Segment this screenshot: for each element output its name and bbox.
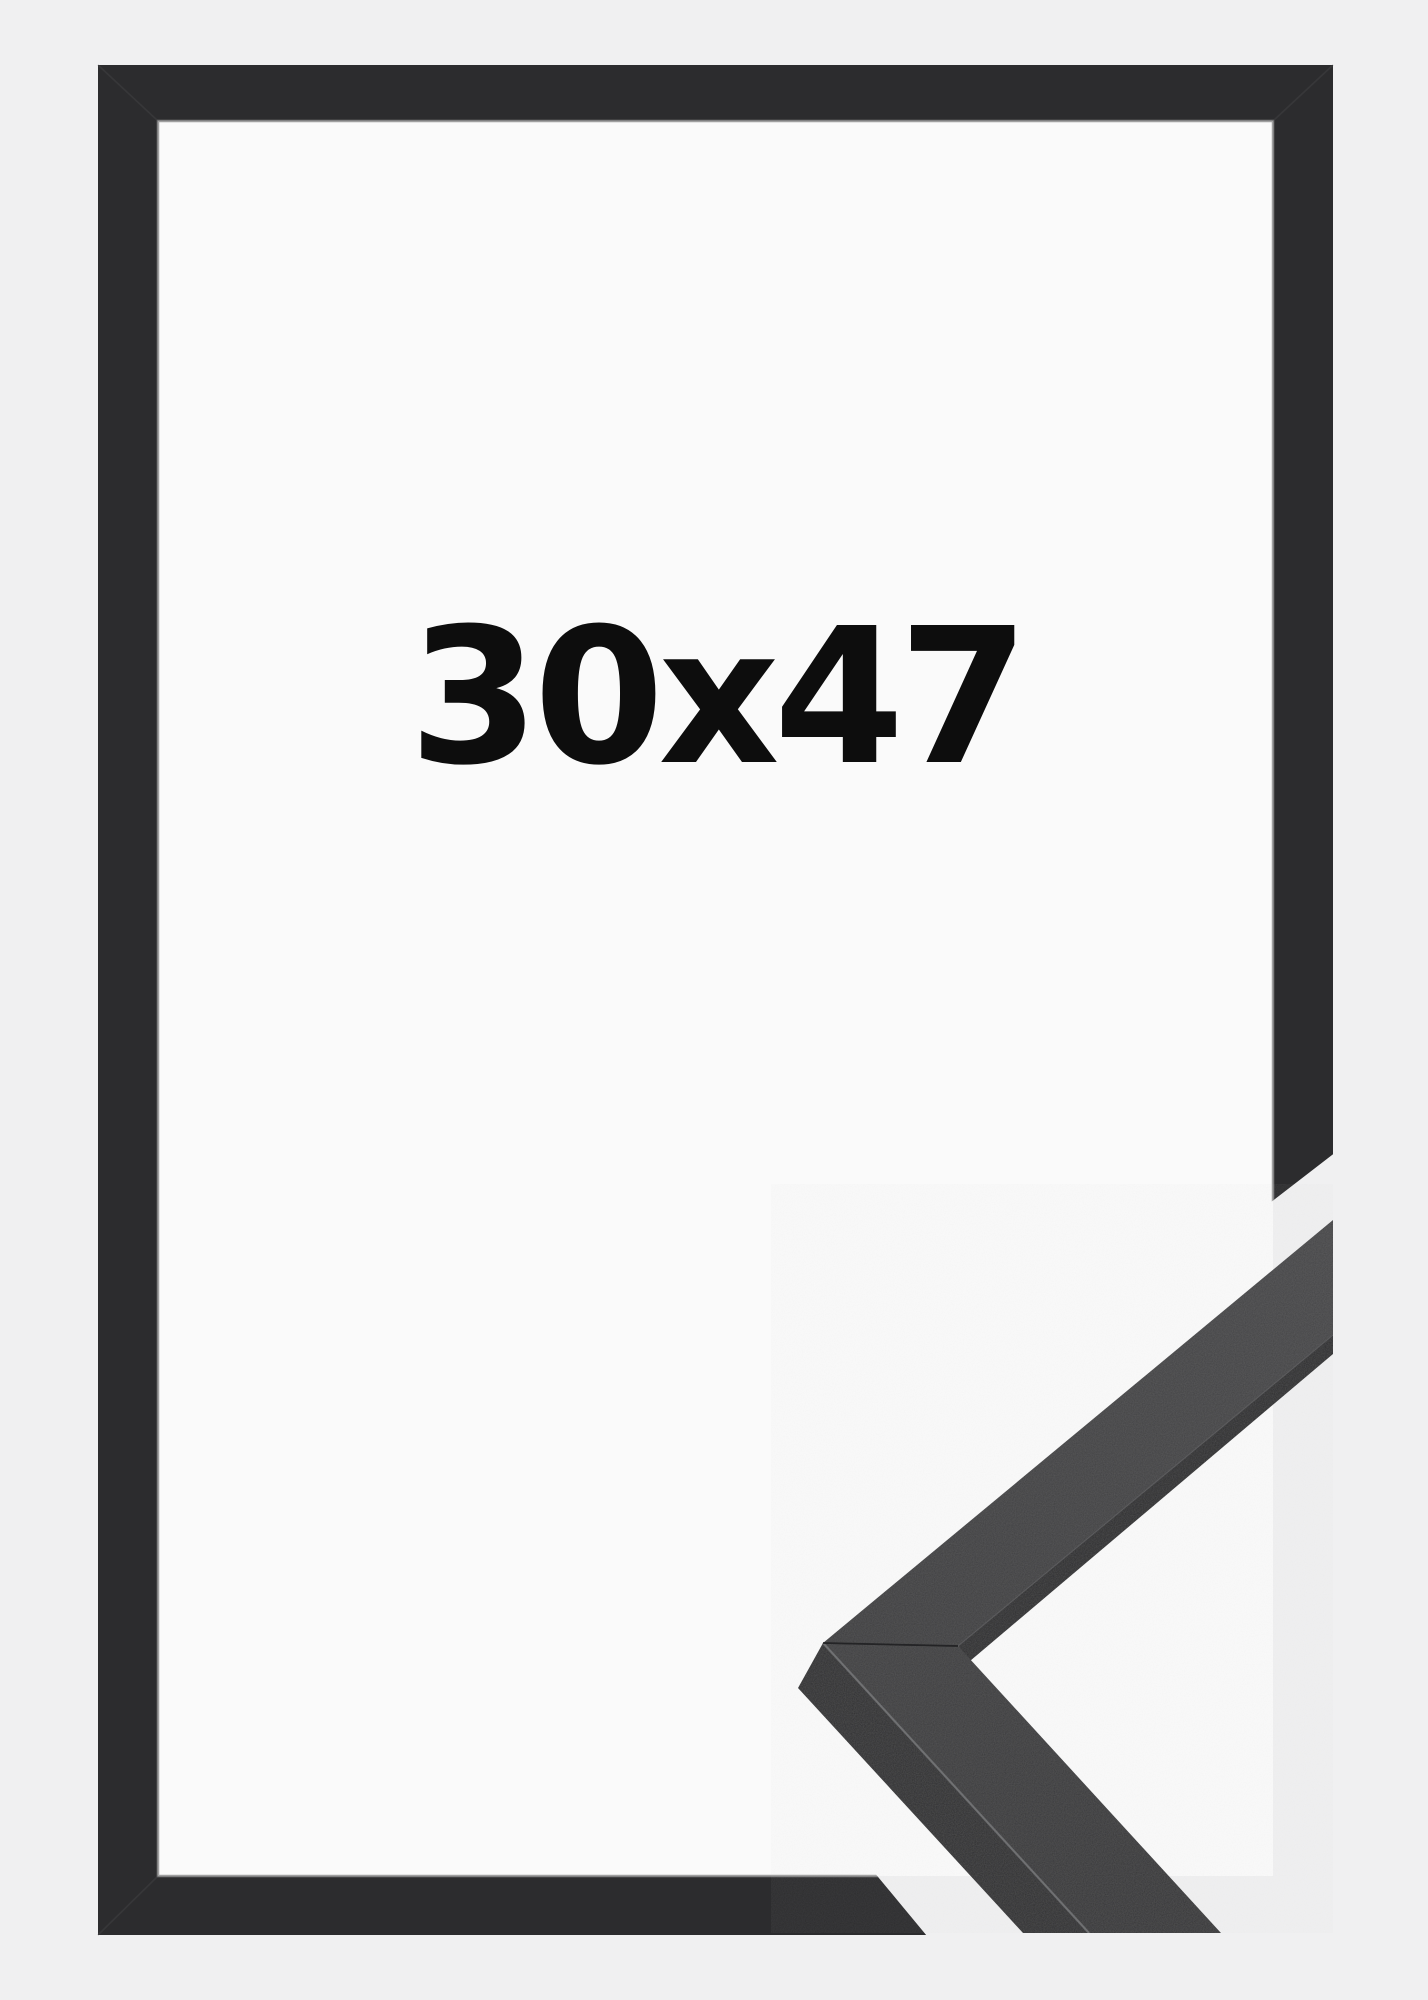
- frame-photo: [98, 65, 1333, 1935]
- size-label: 30x47: [409, 588, 1024, 807]
- product-image: 30x47: [0, 0, 1428, 2000]
- product-image-canvas: 30x47: [0, 0, 1428, 2000]
- frame-inner-area: [158, 121, 1273, 1876]
